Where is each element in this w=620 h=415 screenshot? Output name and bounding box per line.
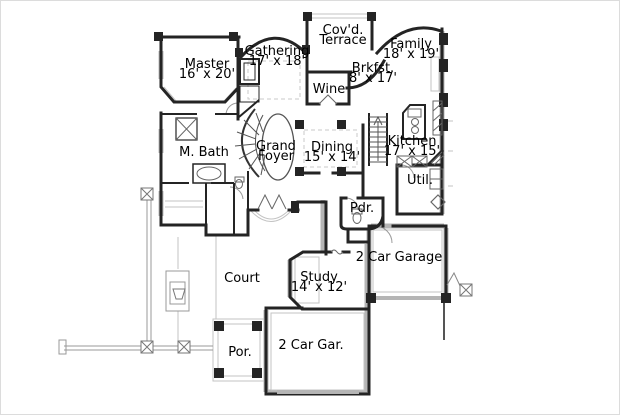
fence-post-marker [178,341,190,353]
survey-marker [460,284,472,296]
room-label-wine: Wine [313,85,345,95]
garage-door-post [441,293,451,303]
corner-post [154,32,163,41]
floorplan: Master16' x 20' Gathering17' x 18' Cov'd… [0,0,620,415]
room-label-gathering: Gathering17' x 18' [245,47,310,67]
room-label-util: Util. [407,176,433,186]
leader-line [447,273,461,288]
room-label-porch: Por. [228,348,252,358]
room-label-court: Court [224,274,260,284]
garage-door-post [366,293,376,303]
porch-column [214,368,224,378]
island-cabinet [408,109,421,117]
room-label-kitchen: Kitchen17' x 15' [384,137,440,157]
court-fountain [166,271,189,311]
room-label-pdr: Pdr. [350,204,374,214]
toilet [236,180,243,189]
fence-post-marker [141,341,153,353]
dining-post [295,167,304,176]
fence-post-marker [141,188,153,200]
cooktop-burner [412,119,419,126]
corner-post [229,32,238,41]
room-label-covd-terrace: Cov'd.Terrace [319,26,366,46]
stair-arrow [374,117,382,161]
dining-post [337,167,346,176]
room-label-dining: Dining15' x 14' [304,143,360,163]
room-label-master: Master16' x 20' [179,60,235,80]
room-label-grand-foyer: GrandFoyer [256,142,296,162]
room-label-gar-2car: 2 Car Gar. [278,341,343,351]
porch-column [252,321,262,331]
room-label-study: Study14' x 12' [291,273,347,293]
window-block [439,59,448,72]
dining-post [337,120,346,129]
window-block [439,33,448,45]
fence-line-vertical [147,200,151,342]
room-label-m-bath: M. Bath [179,148,229,158]
fence-line-horizontal [64,346,213,350]
room-label-family: Family18' x 19' [383,40,439,60]
room-label-garage-2car: 2 Car Garage [356,253,443,263]
arch-post [235,48,243,57]
porch-column [252,368,262,378]
dining-post [295,120,304,129]
room-label-brkfst: Brkfst.8' x 17' [349,64,397,84]
porch-column [214,321,224,331]
terrace-column [303,12,312,21]
bathtub [197,167,221,180]
study-door [331,250,343,254]
entry-post [291,201,299,213]
fence-end-post [59,340,66,354]
terrace-column [367,12,376,21]
entry-double-door [258,195,286,209]
cooktop-burner [412,127,419,134]
